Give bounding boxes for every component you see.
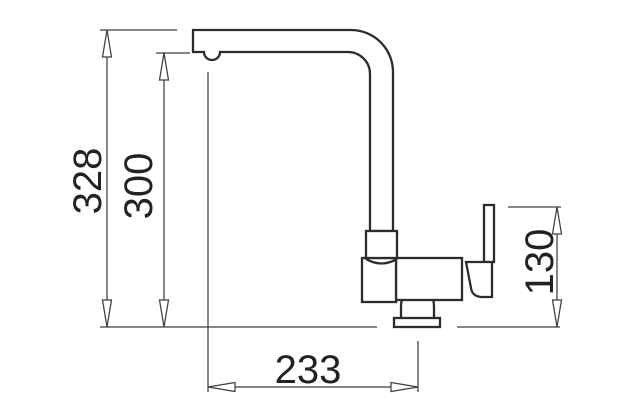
arrow-233-left [208, 383, 235, 392]
label-total-height: 328 [66, 148, 110, 215]
spout-tube-and-riser-pipe [193, 30, 393, 231]
arrow-233-right [391, 383, 418, 392]
handle-base [466, 262, 492, 297]
drawing-canvas: 328 300 130 233 [0, 0, 638, 413]
coupling-nut [366, 231, 397, 258]
label-spout-reach: 233 [275, 348, 342, 392]
label-handle-height: 130 [518, 229, 562, 296]
arrow-300-up [160, 53, 169, 80]
valve-body [396, 258, 462, 300]
riser-collar [362, 258, 396, 302]
arrow-130-down [553, 300, 562, 327]
handle-lever [484, 205, 494, 262]
faucet-body [193, 30, 494, 327]
arrow-328-up [103, 30, 112, 57]
arrow-300-down [160, 300, 169, 327]
base-flange [394, 318, 440, 327]
faucet-technical-drawing: 328 300 130 233 [0, 0, 638, 413]
arrow-328-down [103, 300, 112, 327]
label-spout-outlet-height: 300 [117, 153, 161, 220]
